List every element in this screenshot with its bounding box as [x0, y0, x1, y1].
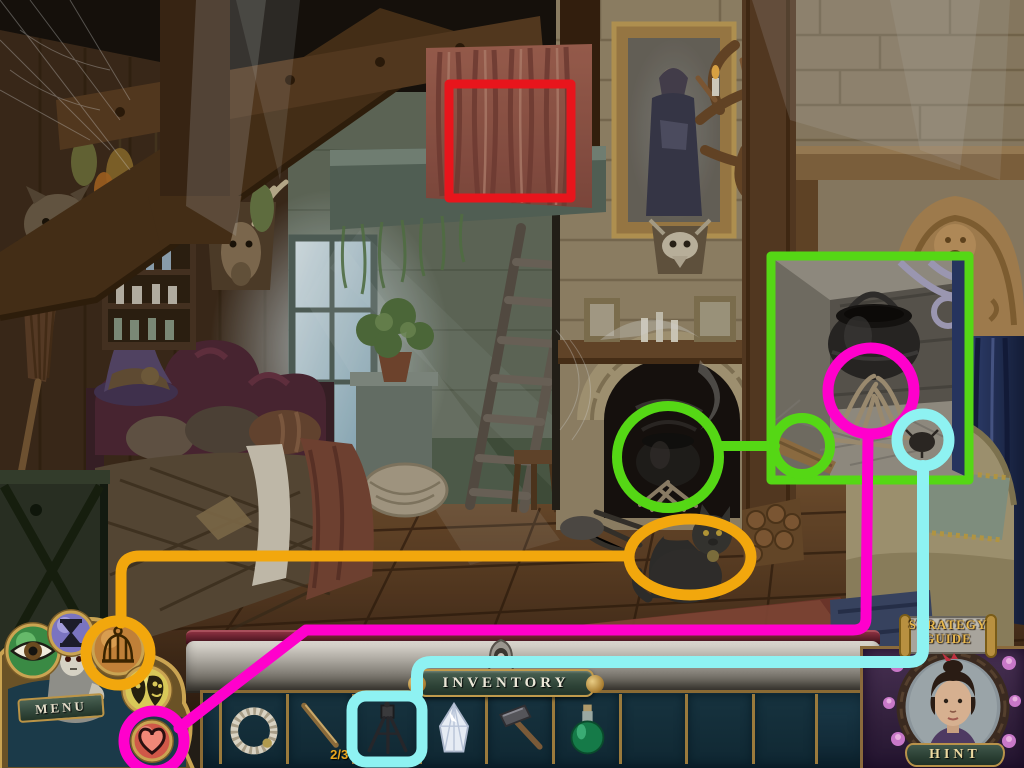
- banner-curl-icon: [586, 675, 604, 693]
- strategy-guide-line2: GUIDE: [898, 632, 998, 646]
- strategy-guide-line1: STRATEGY: [898, 618, 998, 632]
- inventory-slot-green-potion[interactable]: [552, 694, 619, 764]
- inventory-slot-tripod[interactable]: [352, 694, 419, 764]
- hint-button[interactable]: HINT: [905, 743, 1005, 767]
- masks-button[interactable]: [119, 662, 175, 718]
- hammer-item: [489, 696, 551, 762]
- game-screen: 2/3: [0, 0, 1024, 768]
- inventory-slot-rope-ring[interactable]: [219, 694, 286, 764]
- heart-button[interactable]: [128, 717, 176, 765]
- rod-count-badge: 2/3: [330, 747, 348, 762]
- inventory-slot-empty-3[interactable]: [752, 694, 819, 764]
- inventory-slots: 2/3: [219, 694, 819, 764]
- inventory-slot-hammer[interactable]: [485, 694, 552, 764]
- ribbon-icon: [942, 653, 958, 661]
- inventory-slot-empty-2[interactable]: [685, 694, 752, 764]
- menu-button-label: MENU: [35, 698, 88, 718]
- inventory-slot-crystal[interactable]: [419, 694, 486, 764]
- strategy-guide-button[interactable]: STRATEGY GUIDE: [898, 613, 998, 661]
- inventory-slot-rod[interactable]: 2/3: [286, 694, 353, 764]
- banner-curl-icon: [408, 675, 426, 693]
- tripod-item: [356, 696, 418, 762]
- inventory-slot-empty-1[interactable]: [619, 694, 686, 764]
- green-potion-item: [556, 696, 618, 762]
- inventory-banner-label: INVENTORY: [443, 675, 570, 692]
- hint-panel: HINT: [860, 646, 1024, 768]
- menu-cluster: MENU: [0, 595, 200, 768]
- rope-ring-item: [223, 696, 285, 762]
- hint-button-label: HINT: [929, 747, 981, 763]
- crystal-item: [423, 696, 485, 762]
- cauldron-closeup-inset[interactable]: [775, 260, 965, 476]
- inventory-banner: INVENTORY: [418, 669, 594, 697]
